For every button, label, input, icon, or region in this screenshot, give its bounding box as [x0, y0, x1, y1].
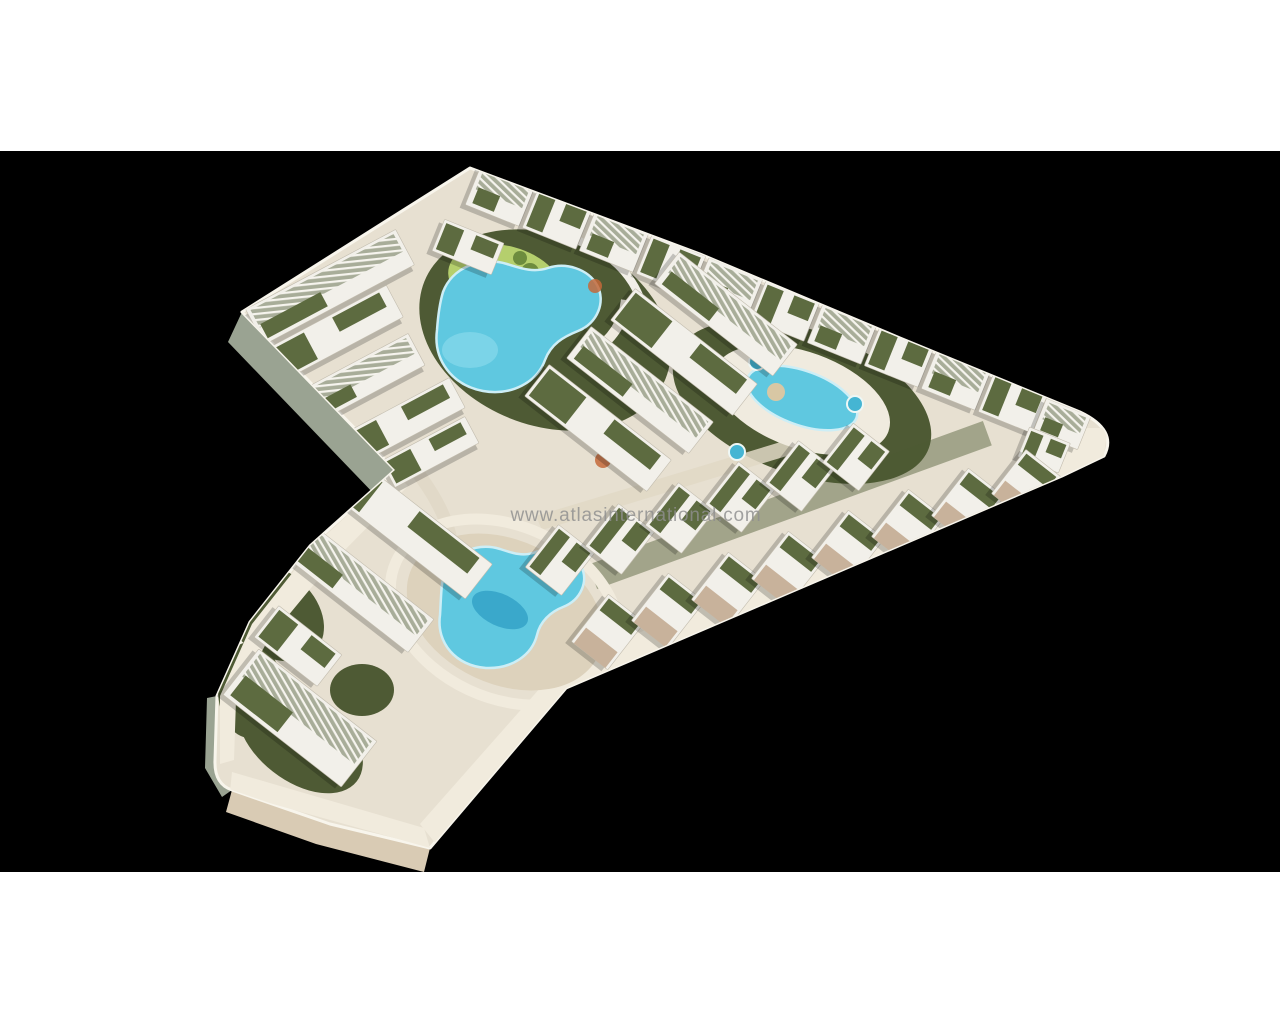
- render-image: www.atlasinternational.com: [0, 0, 1280, 1024]
- pool-island: [767, 383, 785, 401]
- watermarked-render: www.atlasinternational.com: [0, 0, 1280, 1024]
- spa-pool: [847, 396, 863, 412]
- watermark-text: www.atlasinternational.com: [509, 505, 761, 526]
- spa-pool: [729, 444, 745, 460]
